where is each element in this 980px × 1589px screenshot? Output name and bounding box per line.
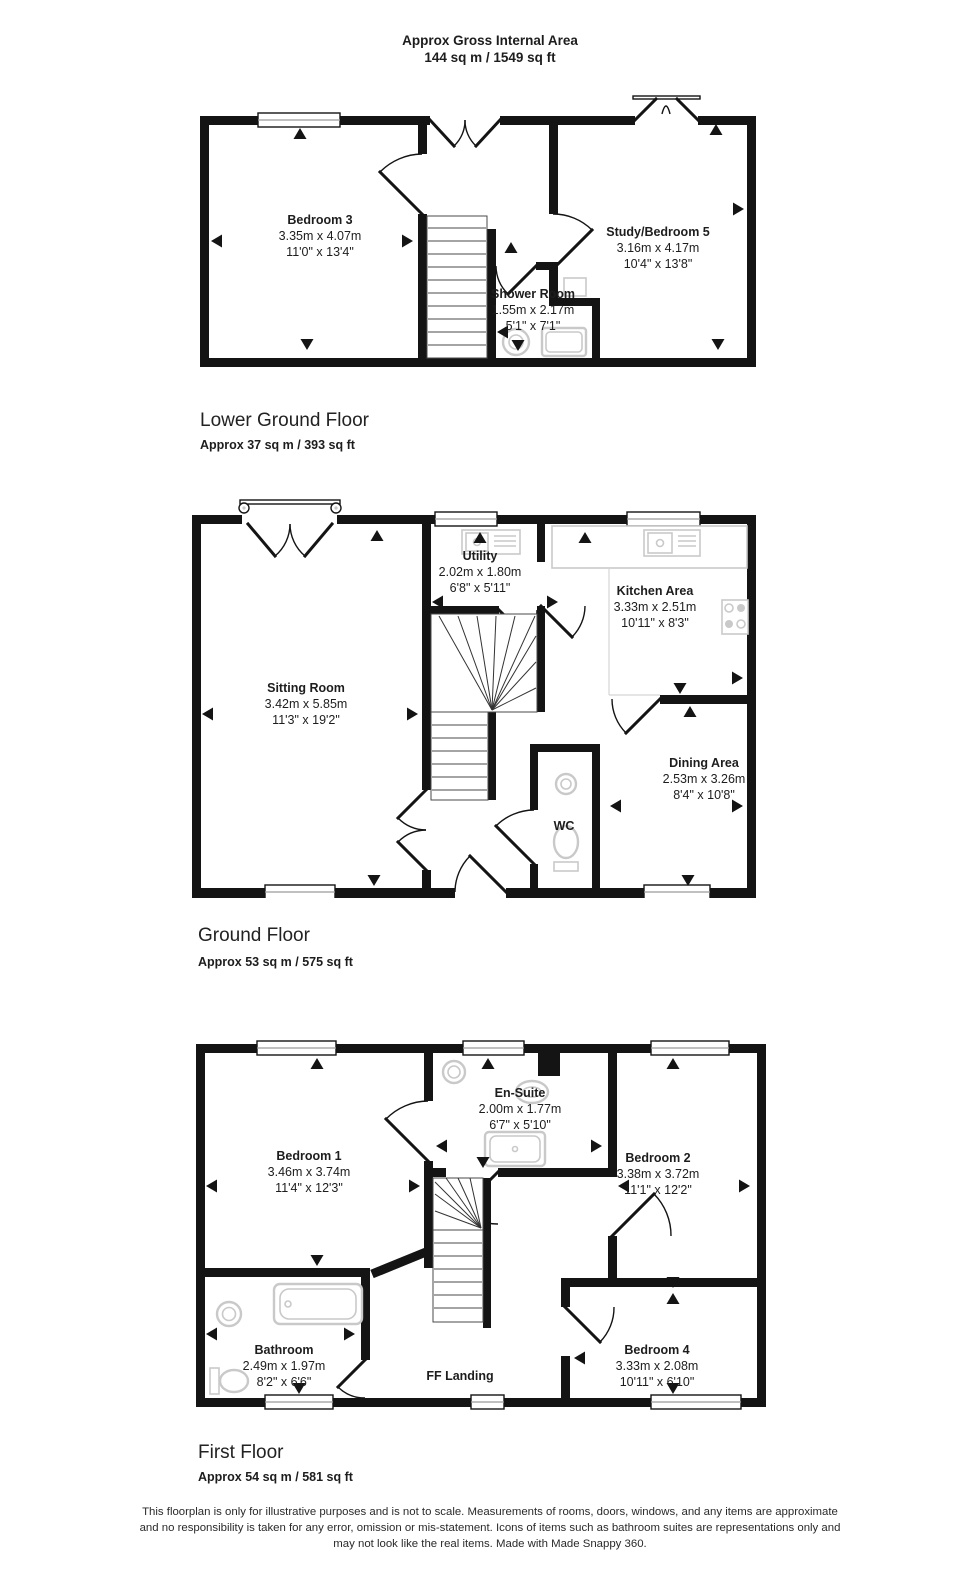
bedroom4-door bbox=[565, 1307, 614, 1342]
staircase bbox=[433, 1178, 483, 1322]
room-label-study-bedroom5: Study/Bedroom 5 3.16m x 4.17m 10'4" x 13… bbox=[606, 224, 710, 272]
room-label-utility: Utility 2.02m x 1.80m 6'8" x 5'11" bbox=[439, 548, 522, 596]
kitchen-sink-icon bbox=[644, 530, 700, 556]
room-label-bedroom4: Bedroom 4 3.33m x 2.08m 10'11" x 6'10" bbox=[616, 1342, 699, 1390]
bathroom-basin-icon bbox=[217, 1302, 241, 1326]
floorplan-page: { "header": { "title": "Approx Gross Int… bbox=[0, 0, 980, 1589]
wc-basin-icon bbox=[556, 774, 576, 794]
front-door bbox=[455, 856, 506, 892]
bedroom2-door bbox=[612, 1194, 671, 1236]
hob-icon bbox=[722, 600, 748, 634]
wc-door bbox=[496, 810, 534, 864]
bedroom3-door bbox=[380, 154, 422, 214]
study-door bbox=[553, 214, 592, 269]
room-label-shower-room: Shower Room 1.55m x 2.17m 5'1" x 7'1" bbox=[491, 286, 575, 334]
bay-french-doors bbox=[239, 500, 341, 556]
ensuite-shower-tray-icon bbox=[485, 1132, 545, 1166]
disclaimer-line-2: and no responsibility is taken for any e… bbox=[0, 1520, 980, 1536]
ensuite-toilet-icon bbox=[443, 1061, 465, 1083]
first-floor-area: Approx 54 sq m / 581 sq ft bbox=[198, 1470, 353, 1484]
room-label-bathroom: Bathroom 2.49m x 1.97m 8'2" x 6'6" bbox=[243, 1342, 326, 1390]
room-label-sitting-room: Sitting Room 3.42m x 5.85m 11'3" x 19'2" bbox=[265, 680, 348, 728]
sitting-room-double-door bbox=[398, 790, 426, 870]
first-floor-title: First Floor bbox=[198, 1442, 284, 1464]
bedroom1-door bbox=[386, 1101, 428, 1161]
room-label-wc: WC bbox=[554, 818, 575, 834]
room-label-bedroom2: Bedroom 2 3.38m x 3.72m 11'1" x 12'2" bbox=[617, 1150, 700, 1198]
room-label-kitchen-area: Kitchen Area 3.33m x 2.51m 10'11" x 8'3" bbox=[614, 583, 697, 631]
ground-floor-area: Approx 53 sq m / 575 sq ft bbox=[198, 955, 353, 969]
lower-ground-floor-area: Approx 37 sq m / 393 sq ft bbox=[200, 438, 355, 452]
kitchen-door bbox=[541, 606, 585, 637]
lower-ground-floor-title: Lower Ground Floor bbox=[200, 410, 369, 432]
disclaimer-line-3: may not look like the real items. Made w… bbox=[0, 1536, 980, 1552]
french-door bbox=[633, 96, 700, 120]
staircase bbox=[427, 216, 487, 358]
entry-double-door bbox=[430, 120, 500, 146]
room-label-dining-area: Dining Area 2.53m x 3.26m 8'4" x 10'8" bbox=[663, 755, 746, 803]
disclaimer: This floorplan is only for illustrative … bbox=[0, 1504, 980, 1553]
disclaimer-line-1: This floorplan is only for illustrative … bbox=[0, 1504, 980, 1520]
room-label-ensuite: En-Suite 2.00m x 1.77m 6'7" x 5'10" bbox=[479, 1085, 562, 1133]
header-title: Approx Gross Internal Area bbox=[0, 33, 980, 50]
staircase bbox=[431, 614, 537, 800]
room-label-bedroom3: Bedroom 3 3.35m x 4.07m 11'0" x 13'4" bbox=[279, 212, 362, 260]
bathroom-door bbox=[338, 1360, 365, 1398]
header-area: 144 sq m / 1549 sq ft bbox=[0, 50, 980, 67]
ground-floor-title: Ground Floor bbox=[198, 925, 310, 947]
gross-internal-area-header: Approx Gross Internal Area 144 sq m / 15… bbox=[0, 33, 980, 67]
window bbox=[258, 113, 340, 127]
bathtub-icon bbox=[274, 1284, 362, 1324]
dining-door bbox=[612, 699, 660, 733]
room-label-ff-landing: FF Landing bbox=[426, 1368, 493, 1384]
room-label-bedroom1: Bedroom 1 3.46m x 3.74m 11'4" x 12'3" bbox=[268, 1148, 351, 1196]
